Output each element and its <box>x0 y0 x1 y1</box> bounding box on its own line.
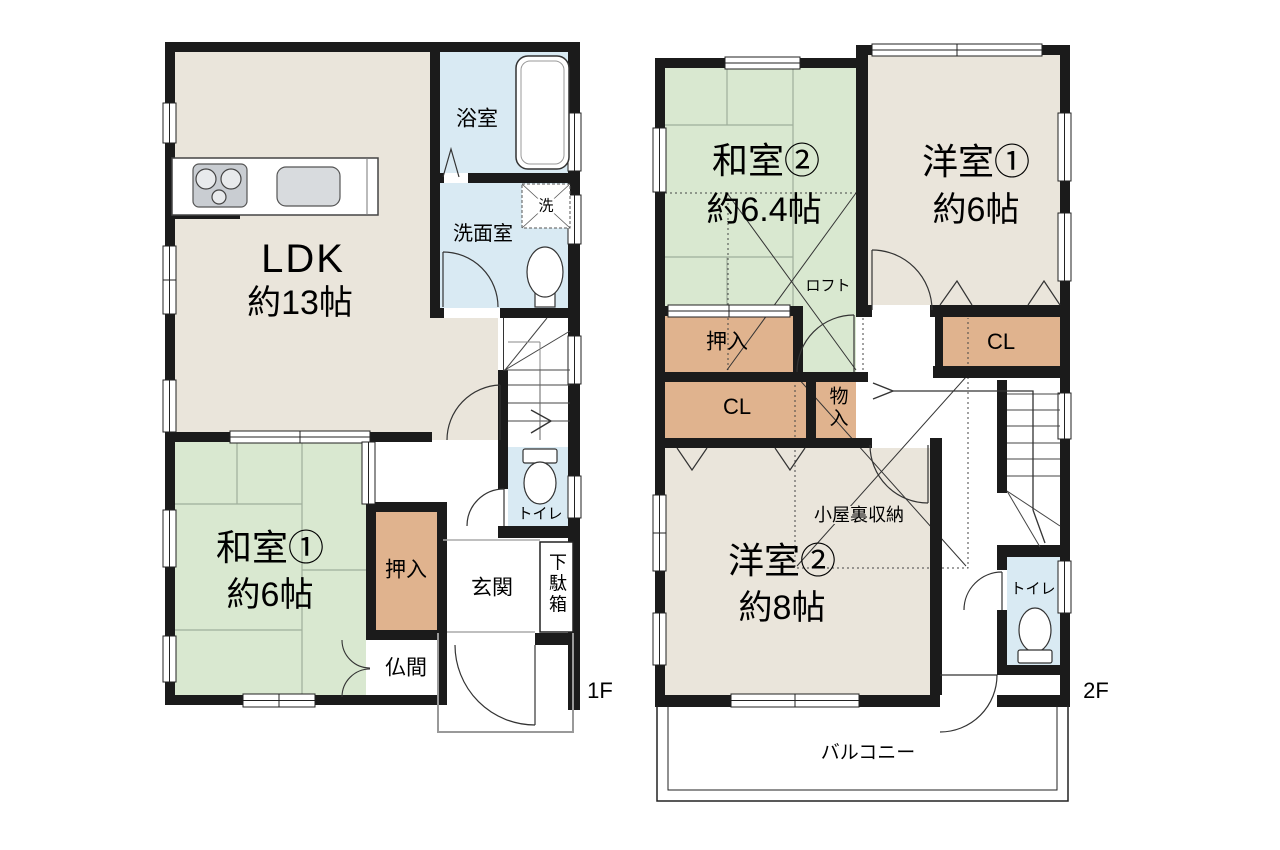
label-balcony: バルコニー <box>821 744 916 763</box>
label-butsuma: 仏間 <box>385 658 427 679</box>
label-getabako: 下駄箱 <box>548 553 566 616</box>
floor-plan: LDK 約13帖 和室① 約6帖 浴室 洗面室 洗 トイレ 押入 仏間 玄関 下… <box>0 0 1280 850</box>
label-ldk-size: 約13帖 <box>247 286 353 320</box>
label-youshitsu2-size: 約8帖 <box>739 591 826 625</box>
washbasin-icon <box>527 247 563 297</box>
label-washroom: 洗面室 <box>453 224 513 244</box>
stair-direction-arrow <box>873 383 893 399</box>
label-floor-2f: 2F <box>1083 680 1109 702</box>
label-monoire: 物入 <box>828 386 847 430</box>
label-closet-right: CL <box>987 331 1015 353</box>
toilet-door <box>467 489 504 526</box>
front-door <box>455 645 535 725</box>
label-loft: ロフト <box>803 279 852 294</box>
label-washitsu1-name: 和室① <box>216 530 324 566</box>
floor-plan-drawing <box>0 0 1280 850</box>
porch-outline <box>438 633 573 732</box>
label-oshiire-1f: 押入 <box>385 560 427 581</box>
label-washitsu2-name: 和室② <box>712 143 820 179</box>
label-laundry: 洗 <box>537 199 554 214</box>
toilet-icon <box>1019 608 1051 652</box>
toilet-icon <box>524 462 556 504</box>
label-youshitsu2-name: 洋室② <box>728 543 836 579</box>
label-bathroom: 浴室 <box>456 109 498 130</box>
label-attic: 小屋裏収納 <box>812 506 906 524</box>
label-floor-1f: 1F <box>587 680 613 702</box>
label-toilet-2f: トイレ <box>1010 582 1055 597</box>
label-toilet-1f: トイレ <box>517 507 562 522</box>
label-washitsu1-size: 約6帖 <box>227 578 314 612</box>
label-youshitsu1-size: 約6帖 <box>933 193 1020 227</box>
sink-icon <box>277 167 340 206</box>
kitchen-counter <box>172 158 378 215</box>
label-closet-left: CL <box>723 396 751 418</box>
label-oshiire-2f: 押入 <box>706 332 748 353</box>
label-ldk-name: LDK <box>261 239 345 279</box>
label-youshitsu1-name: 洋室① <box>922 144 1030 180</box>
label-genkan: 玄関 <box>471 578 513 599</box>
stairs-1f <box>503 318 570 440</box>
bathtub-icon <box>516 56 569 169</box>
toilet2-door <box>964 572 1002 610</box>
toilet-2f <box>1018 608 1052 663</box>
label-washitsu2-size: 約6.4帖 <box>706 193 821 227</box>
